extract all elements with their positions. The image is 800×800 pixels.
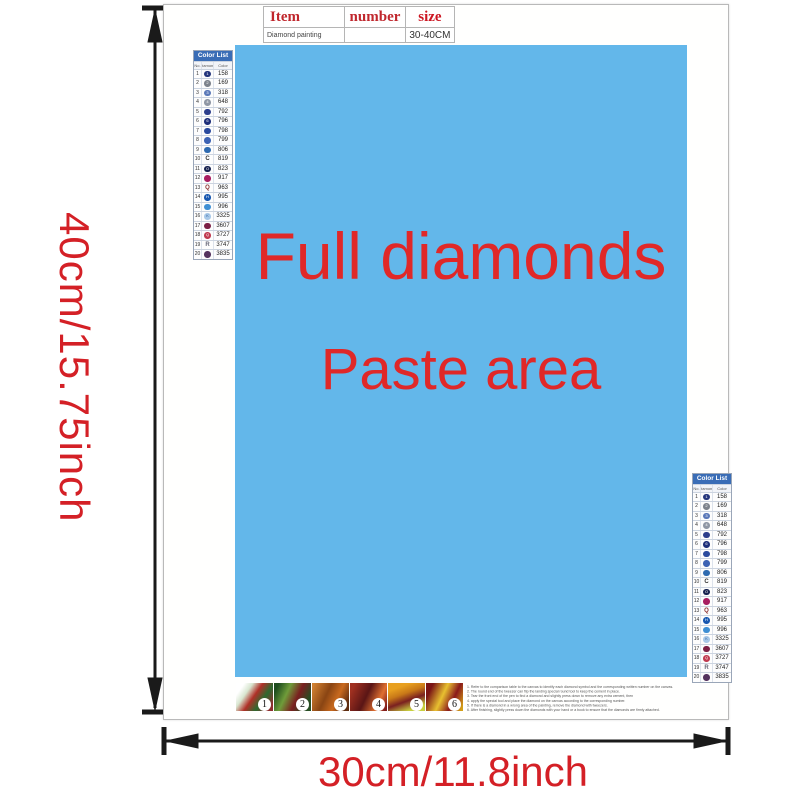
symbol-cell: C xyxy=(202,155,214,164)
symbol-cell: O xyxy=(202,165,214,174)
color-code: 996 xyxy=(713,627,731,633)
step-thumbnail: 5 xyxy=(388,683,425,711)
symbol-cell xyxy=(701,559,713,568)
row-number: 5 xyxy=(693,531,701,540)
color-list-right: Color ListNo.DiamondColor111582216933318… xyxy=(692,473,732,683)
color-list-row: 14H995 xyxy=(194,192,232,202)
color-list-title: Color List xyxy=(693,474,731,484)
diamond-symbol-icon: K xyxy=(204,213,211,220)
diamond-symbol-icon: H xyxy=(703,617,710,624)
diamond-symbol-icon xyxy=(703,570,710,577)
symbol-cell: 3 xyxy=(701,512,713,521)
symbol-cell xyxy=(202,146,214,155)
symbol-cell: 6 xyxy=(202,117,214,126)
row-number: 6 xyxy=(194,117,202,126)
diamond-symbol-icon: 4 xyxy=(204,99,211,106)
color-code: 995 xyxy=(214,194,232,200)
step-number-badge: 1 xyxy=(258,698,271,711)
item-table-header-row: Item number size xyxy=(264,7,455,28)
diamond-symbol-icon: 2 xyxy=(703,503,710,510)
symbol-cell xyxy=(202,174,214,183)
row-number: 9 xyxy=(194,146,202,155)
item-value: Diamond painting xyxy=(264,28,345,43)
color-code: 158 xyxy=(713,494,731,500)
color-list-row: 33318 xyxy=(194,88,232,98)
symbol-cell xyxy=(202,250,214,259)
row-number: 18 xyxy=(693,654,701,663)
color-list-title: Color List xyxy=(194,51,232,61)
diamond-symbol-icon xyxy=(703,598,710,605)
diamond-symbol-icon: 4 xyxy=(703,522,710,529)
row-number: 1 xyxy=(693,493,701,502)
symbol-cell xyxy=(701,531,713,540)
diamond-symbol-icon: 3 xyxy=(703,513,710,520)
color-code: 169 xyxy=(713,503,731,509)
diamond-symbol-icon: 6 xyxy=(204,118,211,125)
instruction-line: 6. After finishing, slightly press down … xyxy=(467,708,705,713)
row-number: 10 xyxy=(194,155,202,164)
color-list-row: 203835 xyxy=(194,249,232,259)
color-code: 3747 xyxy=(713,665,731,671)
row-number: 13 xyxy=(693,607,701,616)
row-number: 6 xyxy=(693,540,701,549)
width-dimension-label: 30cm/11.8inch xyxy=(163,748,743,796)
diamond-symbol-icon: 3 xyxy=(204,90,211,97)
height-dimension-label: 40cm/15.75inch xyxy=(50,212,98,523)
row-number: 12 xyxy=(194,174,202,183)
symbol-cell: 3 xyxy=(202,89,214,98)
row-number: 14 xyxy=(693,616,701,625)
diamond-symbol-icon: C xyxy=(205,156,209,162)
color-list-row: 12917 xyxy=(693,596,731,606)
color-code: 963 xyxy=(214,185,232,191)
row-number: 10 xyxy=(693,578,701,587)
color-code: 796 xyxy=(214,118,232,124)
row-number: 18 xyxy=(194,231,202,240)
diamond-symbol-icon xyxy=(703,532,710,539)
symbol-cell xyxy=(202,203,214,212)
color-list-column-header: No. xyxy=(693,485,701,492)
color-code: 158 xyxy=(214,71,232,77)
color-list-row: 10C819 xyxy=(194,154,232,164)
color-code: 819 xyxy=(214,156,232,162)
color-code: 995 xyxy=(713,617,731,623)
step-number-badge: 2 xyxy=(296,698,309,711)
color-code: 792 xyxy=(713,532,731,538)
diamond-symbol-icon: Q xyxy=(703,655,710,662)
row-number: 7 xyxy=(693,550,701,559)
number-header: number xyxy=(345,7,406,28)
step-thumbnail: 2 xyxy=(274,683,311,711)
color-code: 823 xyxy=(713,589,731,595)
color-list-row: 14H995 xyxy=(693,615,731,625)
symbol-cell: H xyxy=(202,193,214,202)
row-number: 3 xyxy=(693,512,701,521)
color-list-column-header: Color xyxy=(214,63,232,68)
row-number: 5 xyxy=(194,108,202,117)
row-number: 4 xyxy=(194,98,202,107)
color-list-row: 173607 xyxy=(693,644,731,654)
diamond-symbol-icon: O xyxy=(703,589,710,596)
row-number: 1 xyxy=(194,70,202,79)
diamond-symbol-icon xyxy=(703,551,710,558)
row-number: 17 xyxy=(194,222,202,231)
row-number: 19 xyxy=(194,241,202,250)
row-number: 11 xyxy=(693,588,701,597)
row-number: 4 xyxy=(693,521,701,530)
color-code: 799 xyxy=(214,137,232,143)
color-code: 963 xyxy=(713,608,731,614)
color-list-row: 19R3747 xyxy=(194,240,232,250)
row-number: 3 xyxy=(194,89,202,98)
paste-area: Full diamonds Paste area xyxy=(235,45,687,677)
diamond-symbol-icon xyxy=(204,137,211,144)
row-number: 15 xyxy=(693,626,701,635)
color-code: 648 xyxy=(713,522,731,528)
color-code: 318 xyxy=(713,513,731,519)
color-list-row: 7798 xyxy=(693,549,731,559)
symbol-cell: Q xyxy=(701,654,713,663)
product-image: 40cm/15.75inch 30cm/11.8inch Item number… xyxy=(0,0,800,800)
color-list-row: 7798 xyxy=(194,126,232,136)
color-code: 799 xyxy=(713,560,731,566)
color-code: 917 xyxy=(214,175,232,181)
instruction-text: 1. Refer to the comparison table to the … xyxy=(467,685,705,715)
symbol-cell: C xyxy=(701,578,713,587)
step-thumbnail: 6 xyxy=(426,683,463,711)
color-list-header-row: No.DiamondColor xyxy=(693,484,731,492)
color-code: 796 xyxy=(713,541,731,547)
symbol-cell: K xyxy=(202,212,214,221)
diamond-symbol-icon: 6 xyxy=(703,541,710,548)
color-list-row: 8799 xyxy=(194,135,232,145)
row-number: 16 xyxy=(693,635,701,644)
diamond-symbol-icon xyxy=(703,674,710,681)
color-code: 3727 xyxy=(713,655,731,661)
row-number: 14 xyxy=(194,193,202,202)
diamond-symbol-icon: 1 xyxy=(703,494,710,501)
color-code: 917 xyxy=(713,598,731,604)
diamond-symbol-icon xyxy=(703,646,710,653)
symbol-cell: 6 xyxy=(701,540,713,549)
symbol-cell: 4 xyxy=(701,521,713,530)
symbol-cell: 4 xyxy=(202,98,214,107)
color-list-row: 66796 xyxy=(194,116,232,126)
color-code: 823 xyxy=(214,166,232,172)
diamond-symbol-icon: Q xyxy=(704,608,709,614)
row-number: 13 xyxy=(194,184,202,193)
color-list-row: 12917 xyxy=(194,173,232,183)
item-info-table: Item number size Diamond painting 30-40C… xyxy=(263,6,455,43)
symbol-cell: R xyxy=(202,241,214,250)
diamond-symbol-icon xyxy=(204,223,211,230)
symbol-cell: 2 xyxy=(701,502,713,511)
color-code: 996 xyxy=(214,204,232,210)
symbol-cell: Q xyxy=(202,184,214,193)
color-list-row: 11O823 xyxy=(693,587,731,597)
color-code: 3607 xyxy=(214,223,232,229)
symbol-cell: Q xyxy=(202,231,214,240)
step-thumbnail: 1 xyxy=(236,683,273,711)
color-code: 792 xyxy=(214,109,232,115)
color-code: 3727 xyxy=(214,232,232,238)
color-code: 169 xyxy=(214,80,232,86)
color-list-row: 11158 xyxy=(693,492,731,502)
color-list-row: 11O823 xyxy=(194,164,232,174)
color-list-column-header: Diamond xyxy=(202,62,214,69)
diamond-symbol-icon: R xyxy=(704,665,708,671)
color-code: 819 xyxy=(713,579,731,585)
color-list-row: 9806 xyxy=(693,568,731,578)
symbol-cell xyxy=(202,108,214,117)
row-number: 20 xyxy=(194,250,202,259)
color-list-row: 203835 xyxy=(693,672,731,682)
color-code: 806 xyxy=(713,570,731,576)
color-list-row: 15996 xyxy=(693,625,731,635)
color-list-row: 13Q963 xyxy=(194,183,232,193)
row-number: 15 xyxy=(194,203,202,212)
color-code: 3607 xyxy=(713,646,731,652)
step-thumbnail: 3 xyxy=(312,683,349,711)
diamond-symbol-icon xyxy=(703,627,710,634)
color-list-row: 44648 xyxy=(194,97,232,107)
color-list-row: 16K3325 xyxy=(194,211,232,221)
step-number-badge: 5 xyxy=(410,698,423,711)
row-number: 11 xyxy=(194,165,202,174)
diamond-symbol-icon: 1 xyxy=(204,71,211,78)
color-code: 806 xyxy=(214,147,232,153)
symbol-cell: 1 xyxy=(701,493,713,502)
step-number-badge: 3 xyxy=(334,698,347,711)
symbol-cell xyxy=(701,673,713,682)
color-code: 798 xyxy=(214,128,232,134)
color-list-row: 19R3747 xyxy=(693,663,731,673)
color-list-row: 18Q3727 xyxy=(693,653,731,663)
diamond-symbol-icon: H xyxy=(204,194,211,201)
row-number: 20 xyxy=(693,673,701,682)
color-list-column-header: Diamond xyxy=(701,485,713,492)
color-list-row: 15996 xyxy=(194,202,232,212)
row-number: 19 xyxy=(693,664,701,673)
row-number: 2 xyxy=(194,79,202,88)
color-list-row: 22169 xyxy=(693,501,731,511)
row-number: 17 xyxy=(693,645,701,654)
diamond-symbol-icon: Q xyxy=(204,232,211,239)
color-list-row: 8799 xyxy=(693,558,731,568)
color-list-row: 5792 xyxy=(693,530,731,540)
symbol-cell xyxy=(701,569,713,578)
color-code: 318 xyxy=(214,90,232,96)
color-list-row: 16K3325 xyxy=(693,634,731,644)
symbol-cell xyxy=(701,597,713,606)
color-code: 3835 xyxy=(214,251,232,257)
symbol-cell: R xyxy=(701,664,713,673)
item-table-value-row: Diamond painting 30-40CM xyxy=(264,28,455,43)
row-number: 8 xyxy=(693,559,701,568)
color-list-row: 13Q963 xyxy=(693,606,731,616)
symbol-cell: 2 xyxy=(202,79,214,88)
diamond-symbol-icon xyxy=(204,128,211,135)
diamond-symbol-icon: C xyxy=(704,579,708,585)
diamond-symbol-icon xyxy=(204,204,211,211)
symbol-cell: K xyxy=(701,635,713,644)
color-list-row: 173607 xyxy=(194,221,232,231)
diamond-symbol-icon: O xyxy=(204,166,211,173)
symbol-cell: O xyxy=(701,588,713,597)
symbol-cell xyxy=(701,645,713,654)
color-list-row: 11158 xyxy=(194,69,232,79)
symbol-cell xyxy=(202,127,214,136)
color-list-column-header: No. xyxy=(194,62,202,69)
color-list-row: 9806 xyxy=(194,145,232,155)
color-list-left: Color ListNo.DiamondColor111582216933318… xyxy=(193,50,233,260)
color-list-row: 22169 xyxy=(194,78,232,88)
diamond-symbol-icon: K xyxy=(703,636,710,643)
diamond-symbol-icon: 2 xyxy=(204,80,211,87)
color-list-column-header: Color xyxy=(713,486,731,491)
row-number: 16 xyxy=(194,212,202,221)
color-code: 3835 xyxy=(713,674,731,680)
color-list-row: 66796 xyxy=(693,539,731,549)
number-value xyxy=(345,28,406,43)
symbol-cell: H xyxy=(701,616,713,625)
diamond-symbol-icon xyxy=(204,109,211,116)
color-list-row: 44648 xyxy=(693,520,731,530)
row-number: 12 xyxy=(693,597,701,606)
symbol-cell xyxy=(701,550,713,559)
symbol-cell xyxy=(202,222,214,231)
instruction-lines: 1. Refer to the comparison table to the … xyxy=(467,685,705,713)
step-number-badge: 4 xyxy=(372,698,385,711)
color-list-row: 10C819 xyxy=(693,577,731,587)
color-code: 3325 xyxy=(713,636,731,642)
row-number: 8 xyxy=(194,136,202,145)
color-list-header-row: No.DiamondColor xyxy=(194,61,232,69)
row-number: 9 xyxy=(693,569,701,578)
row-number: 7 xyxy=(194,127,202,136)
color-code: 3325 xyxy=(214,213,232,219)
symbol-cell xyxy=(202,136,214,145)
paste-area-subtitle: Paste area xyxy=(321,341,602,399)
color-list-row: 5792 xyxy=(194,107,232,117)
diamond-symbol-icon xyxy=(204,147,211,154)
symbol-cell xyxy=(701,626,713,635)
size-header: size xyxy=(405,7,454,28)
symbol-cell: 1 xyxy=(202,70,214,79)
diamond-symbol-icon: Q xyxy=(205,185,210,191)
step-thumbnail: 4 xyxy=(350,683,387,711)
size-value: 30-40CM xyxy=(405,28,454,43)
color-code: 798 xyxy=(713,551,731,557)
paste-area-title: Full diamonds xyxy=(256,223,667,289)
symbol-cell: Q xyxy=(701,607,713,616)
diamond-symbol-icon: R xyxy=(205,242,209,248)
color-code: 3747 xyxy=(214,242,232,248)
color-list-row: 33318 xyxy=(693,511,731,521)
color-list-row: 18Q3727 xyxy=(194,230,232,240)
diamond-symbol-icon xyxy=(703,560,710,567)
step-number-badge: 6 xyxy=(448,698,461,711)
item-header: Item xyxy=(264,7,345,28)
instruction-steps: 123456 xyxy=(236,683,463,711)
color-code: 648 xyxy=(214,99,232,105)
diamond-symbol-icon xyxy=(204,251,211,258)
diamond-symbol-icon xyxy=(204,175,211,182)
row-number: 2 xyxy=(693,502,701,511)
